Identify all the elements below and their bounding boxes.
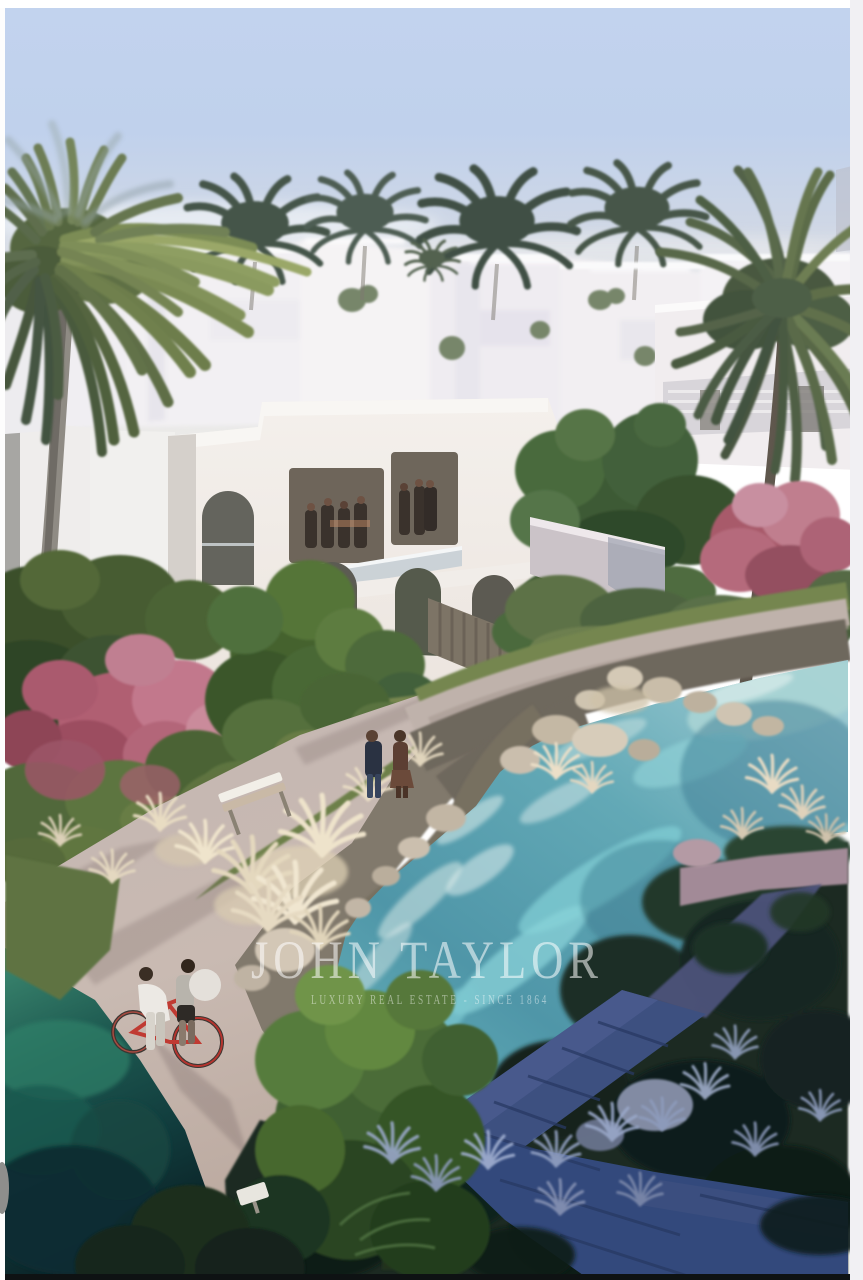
svg-text:LUXURY REAL ESTATE - SINCE 186: LUXURY REAL ESTATE - SINCE 1864 [311,993,549,1008]
svg-text:JOHN TAYLOR: JOHN TAYLOR [251,930,603,990]
